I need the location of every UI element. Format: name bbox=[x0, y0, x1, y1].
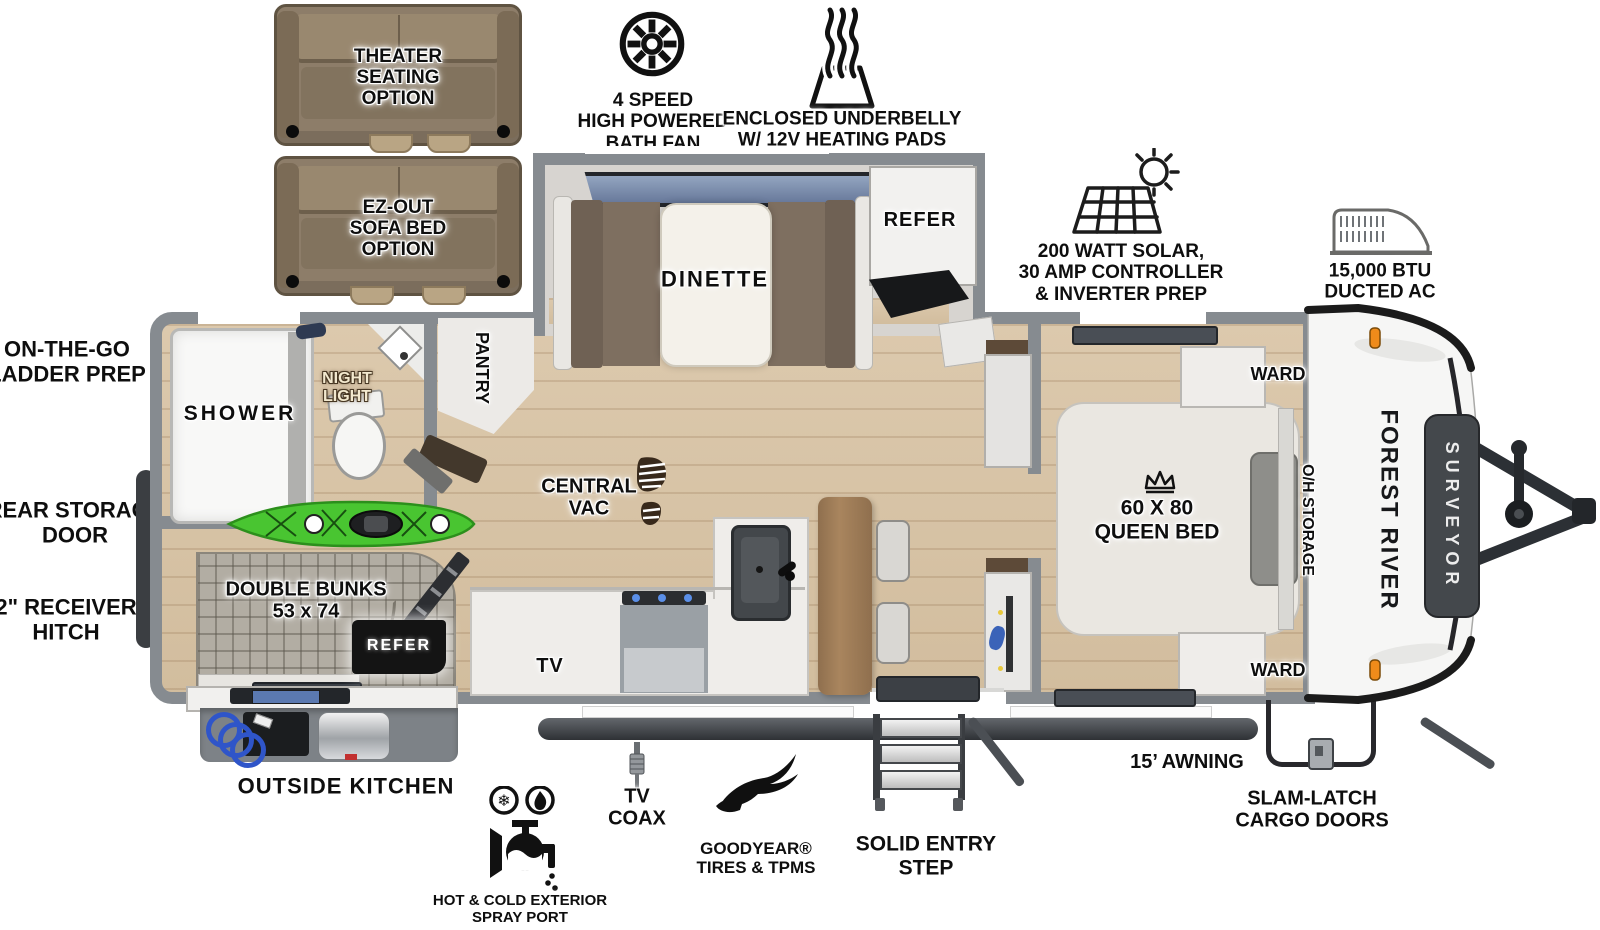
cabinet-trim bbox=[986, 340, 1028, 354]
brand-model-decal: SURVEYOR bbox=[1442, 442, 1463, 591]
bedroom-window bbox=[1054, 689, 1196, 707]
solar-panel-icon bbox=[1062, 148, 1180, 242]
awning-roll bbox=[582, 706, 854, 718]
spray-hose-coil bbox=[230, 732, 266, 768]
tank-valve bbox=[345, 754, 357, 760]
goodyear-wingfoot-icon bbox=[712, 750, 804, 816]
mirror-cabinet bbox=[984, 354, 1032, 468]
underbelly-label: ENCLOSED UNDERBELLY W/ 12V HEATING PADS bbox=[723, 109, 962, 152]
brand-model-badge: SURVEYOR bbox=[1424, 414, 1480, 618]
tires-label: GOODYEAR® TIRES & TPMS bbox=[696, 839, 815, 877]
window-gap bbox=[1080, 312, 1206, 324]
sofa-foot bbox=[422, 286, 466, 305]
bolt-icon bbox=[286, 125, 299, 138]
entry-art-panel bbox=[984, 572, 1032, 692]
tv-coax-icon bbox=[624, 742, 650, 792]
ducted-ac-icon bbox=[1326, 202, 1436, 258]
dinette-bench-end bbox=[553, 196, 573, 370]
receiver-hitch-label: 2" RECEIVER HITCH bbox=[0, 595, 137, 644]
floorplan-diagram: THEATER SEATING OPTION EZ-OUT SOFA BED O… bbox=[0, 0, 1600, 930]
pantry-label: PANTRY bbox=[472, 332, 492, 404]
sink-faucet bbox=[400, 352, 408, 360]
heated-underbelly-icon bbox=[798, 4, 886, 114]
kayak bbox=[226, 496, 478, 552]
cargo-door-outline bbox=[1266, 700, 1376, 767]
outside-kitchen-tank bbox=[318, 712, 390, 760]
bar-stool bbox=[876, 602, 910, 664]
slide-refer-label: REFER bbox=[884, 209, 957, 231]
cabinet-trim bbox=[986, 558, 1028, 572]
kitchen-island bbox=[818, 497, 872, 695]
brand-maker-decal: FOREST RIVER bbox=[1375, 409, 1402, 610]
sofa-arm bbox=[497, 11, 519, 137]
recliner-footrest bbox=[369, 134, 413, 153]
dinette-label: DINETTE bbox=[661, 268, 769, 293]
crown-icon bbox=[1138, 468, 1182, 496]
toilet-bowl bbox=[332, 412, 386, 480]
oven-door bbox=[624, 648, 704, 692]
window-gap bbox=[198, 312, 300, 324]
bolt-icon bbox=[497, 125, 510, 138]
entry-steps bbox=[873, 714, 965, 812]
bolt-icon bbox=[286, 275, 299, 288]
ward-front-label: WARD bbox=[1251, 364, 1306, 384]
ducted-ac-label: 15,000 BTU DUCTED AC bbox=[1324, 261, 1435, 304]
dinette-bench-seat bbox=[768, 202, 825, 366]
awning-label: 15’ AWNING bbox=[1130, 751, 1244, 773]
slideout-top-gap bbox=[585, 146, 829, 154]
queen-bed-label: 60 X 80 QUEEN BED bbox=[1095, 496, 1220, 543]
recliner-footrest bbox=[427, 134, 471, 153]
night-light-label: NIGHT LIGHT bbox=[322, 370, 372, 406]
ez-out-sofa-bed-option: EZ-OUT SOFA BED OPTION bbox=[274, 156, 522, 296]
entry-step-label: SOLID ENTRY STEP bbox=[856, 832, 996, 879]
sofa-foot bbox=[350, 286, 394, 305]
central-vac-label: CENTRAL VAC bbox=[541, 476, 637, 521]
tv-label: TV bbox=[536, 655, 564, 677]
griddle-mat bbox=[252, 690, 320, 704]
entry-mat bbox=[876, 676, 980, 702]
slam-latch bbox=[1308, 738, 1334, 770]
dinette-bench-seat bbox=[603, 202, 660, 366]
bolt-icon bbox=[497, 275, 510, 288]
flame-icon bbox=[534, 791, 546, 810]
sofa-arm bbox=[497, 163, 519, 288]
kitchen-faucet-base bbox=[785, 571, 795, 581]
shower-label: SHOWER bbox=[184, 402, 297, 426]
ac-vent-grille bbox=[1340, 231, 1386, 242]
oh-storage-label: O/H STORAGE bbox=[1298, 464, 1316, 576]
bar-stool bbox=[876, 520, 910, 582]
tv-coax-label: TV COAX bbox=[608, 786, 666, 831]
spray-port-icon: ❄ bbox=[478, 786, 566, 892]
solar-label: 200 WATT SOLAR, 30 AMP CONTROLLER & INVE… bbox=[1019, 241, 1224, 305]
oh-storage-cabinet bbox=[1278, 408, 1294, 630]
ward-rear-label: WARD bbox=[1251, 660, 1306, 680]
sofa-arm bbox=[277, 163, 299, 288]
awning-arm bbox=[1419, 716, 1496, 770]
bunk-refer-label: REFER bbox=[367, 637, 431, 655]
ladder-prep-label: ON-THE-GO LADDER PREP bbox=[0, 337, 146, 386]
theater-seating-label: THEATER SEATING OPTION bbox=[338, 46, 459, 110]
cooktop-burners bbox=[622, 591, 706, 605]
sofa-arm bbox=[277, 11, 299, 137]
awning-roll bbox=[1010, 706, 1212, 718]
bath-fan-label: 4 SPEED HIGH POWERED BATH FAN bbox=[578, 90, 729, 154]
bootprint-icon bbox=[633, 455, 669, 529]
double-bunks-label: DOUBLE BUNKS 53 x 74 bbox=[225, 579, 386, 624]
snowflake-icon: ❄ bbox=[497, 793, 510, 810]
cargo-doors-label: SLAM-LATCH CARGO DOORS bbox=[1235, 788, 1388, 833]
marker-light bbox=[1370, 328, 1380, 348]
theater-seating-option: THEATER SEATING OPTION bbox=[274, 4, 522, 146]
ac-vent-grille bbox=[1340, 216, 1386, 227]
dinette-bench-back bbox=[825, 200, 855, 368]
marker-light bbox=[1370, 660, 1380, 680]
spray-port-label: HOT & COLD EXTERIOR SPRAY PORT bbox=[433, 893, 607, 927]
bathroom-wall bbox=[424, 324, 437, 522]
bath-fan-icon bbox=[618, 10, 686, 78]
ez-sofa-label: EZ-OUT SOFA BED OPTION bbox=[350, 197, 446, 261]
outside-kitchen-label: OUTSIDE KITCHEN bbox=[238, 775, 455, 800]
dinette-bench-back bbox=[571, 200, 603, 368]
bedroom-window bbox=[1072, 326, 1218, 345]
